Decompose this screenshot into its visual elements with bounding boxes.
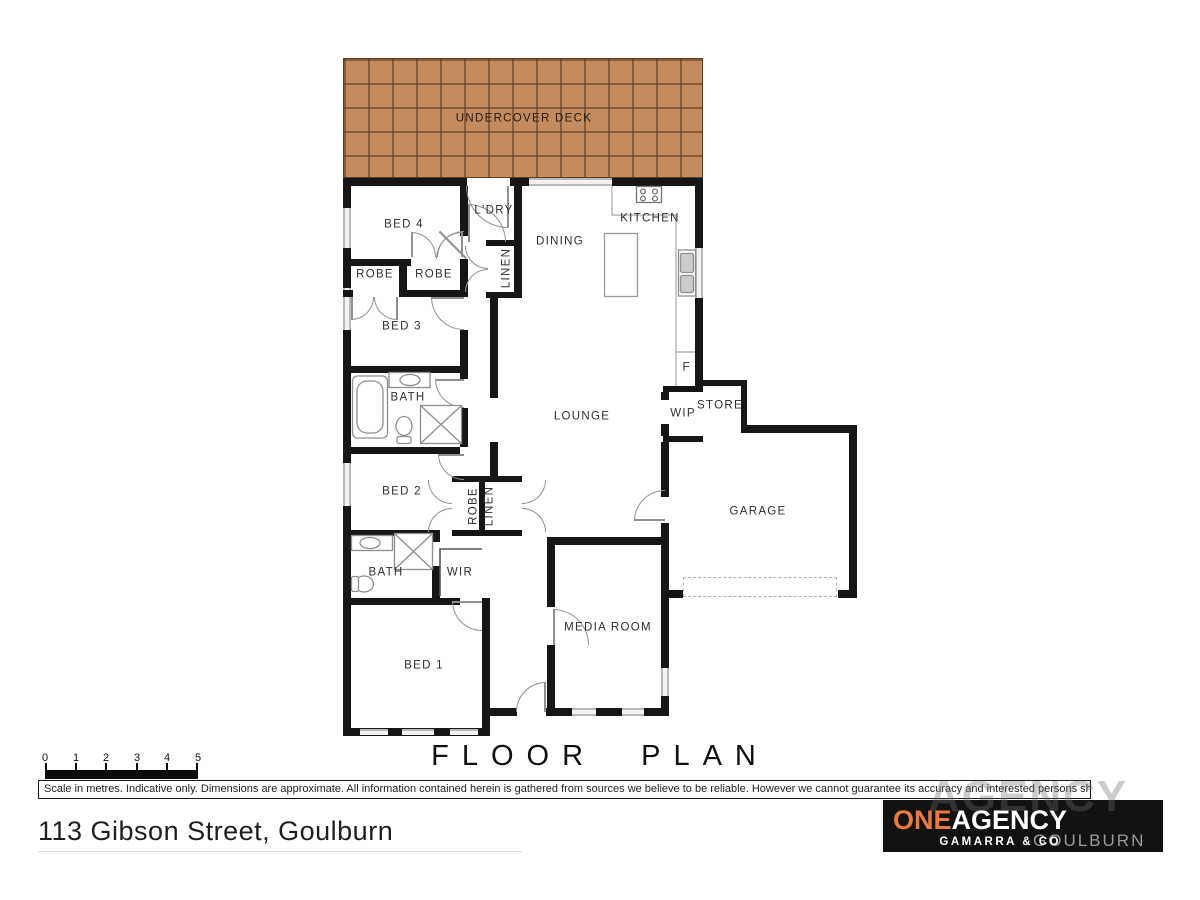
door-leaf: [351, 297, 353, 320]
door-leaf: [553, 609, 555, 645]
property-address: 113 Gibson Street, Goulburn: [38, 816, 393, 847]
fridge-label: F: [682, 362, 689, 374]
window: [343, 463, 351, 506]
door-leaf: [431, 297, 464, 299]
wall-segment: [460, 408, 468, 447]
window: [622, 708, 644, 716]
wall-segment: [490, 298, 498, 398]
door-leaf: [452, 601, 482, 603]
door-arc: [452, 601, 482, 631]
room-label-bed4: BED 4: [384, 219, 424, 231]
page-title: FLOOR PLAN: [0, 740, 1200, 773]
room-label-bed1: BED 1: [404, 660, 444, 672]
wall-segment: [343, 366, 468, 373]
wall-segment: [343, 506, 351, 736]
wall-segment: [343, 530, 440, 536]
wall-segment: [596, 708, 622, 716]
door-leaf: [396, 297, 398, 320]
door-arc: [437, 232, 462, 257]
window: [695, 248, 703, 298]
wall-segment: [343, 290, 353, 297]
wall-segment: [547, 645, 555, 716]
wall-segment: [663, 386, 703, 392]
garage-door-dashed: [683, 577, 837, 597]
wall-segment: [343, 178, 467, 186]
room-label-store: STORE: [697, 400, 743, 412]
toilet-fixture: [396, 417, 412, 436]
door-arc: [351, 297, 374, 320]
wall-segment: [838, 590, 857, 598]
vanity-fixture: [389, 373, 430, 388]
wall-segment: [343, 447, 460, 454]
shower-fixture: [421, 406, 462, 444]
wall-segment: [695, 298, 703, 386]
wall-segment: [452, 530, 522, 536]
room-label-kitchen: KITCHEN: [620, 213, 680, 225]
wall-segment: [482, 598, 490, 710]
window: [529, 178, 612, 186]
wall-segment: [849, 433, 857, 598]
room-label-deck: UNDERCOVER DECK: [456, 113, 592, 125]
floor-plan-page: UNDERCOVER DECK: [0, 0, 1200, 900]
room-label-bed2: BED 2: [382, 486, 422, 498]
room-label-bath-2: BATH: [368, 567, 403, 579]
window: [661, 668, 669, 696]
room-label-linen-2: LINEN: [484, 486, 496, 526]
room-label-bath-1: BATH: [390, 392, 425, 404]
room-label-linen-1: LINEN: [501, 248, 513, 288]
wall-segment: [343, 248, 351, 288]
room-label-wip: WIP: [670, 408, 696, 420]
room-label-lounge: LOUNGE: [554, 411, 610, 423]
door-arc: [428, 480, 452, 504]
wall-segment: [663, 436, 703, 442]
room-label-robe-1: ROBE: [356, 269, 394, 281]
wall-segment: [547, 537, 667, 545]
room-label-laundry: L'DRY: [474, 205, 513, 217]
door-arc: [522, 508, 546, 532]
undercover-deck-area: UNDERCOVER DECK: [343, 58, 703, 178]
wall-segment: [343, 178, 351, 208]
wall-segment: [741, 425, 857, 433]
door-leaf: [435, 379, 464, 381]
window: [360, 729, 388, 735]
island-bench: [605, 234, 638, 297]
vanity-fixture: [352, 536, 393, 551]
door-leaf: [461, 232, 463, 257]
wall-segment: [510, 178, 529, 186]
wall-segment: [343, 598, 460, 605]
door-arc: [411, 232, 436, 257]
door-arc: [516, 682, 546, 712]
room-label-dining: DINING: [536, 236, 584, 248]
room-label-media: MEDIA ROOM: [564, 622, 652, 634]
wall-segment: [432, 566, 440, 598]
scale-bar-rule: [45, 770, 198, 779]
shower-fixture: [395, 534, 433, 570]
agency-watermark: AGENCY: [928, 772, 1128, 822]
cooktop-fixture: [637, 187, 662, 203]
wall-segment: [490, 442, 498, 476]
wall-segment: [661, 392, 669, 400]
window: [572, 708, 596, 716]
room-label-bed3: BED 3: [382, 321, 422, 333]
wall-segment: [486, 292, 522, 298]
wall-segment: [695, 380, 747, 386]
wall-segment: [547, 537, 555, 607]
bathtub-fixture: [353, 376, 388, 438]
door-leaf: [544, 682, 546, 712]
door-arc: [438, 454, 464, 480]
wall-segment: [399, 259, 407, 297]
sink-fixture: [679, 250, 696, 296]
logo-subtitle: GAMARRA & CO: [893, 836, 1061, 848]
door-arc: [522, 480, 546, 504]
door-arc: [431, 297, 464, 330]
wall-segment: [661, 442, 669, 497]
address-divider: [38, 851, 522, 852]
wall-segment: [343, 330, 351, 463]
window: [402, 729, 434, 735]
wall-segment: [644, 708, 669, 716]
room-label-wir: WIR: [447, 567, 473, 579]
wall-segment: [460, 330, 468, 366]
door-arc: [634, 490, 665, 521]
window: [450, 729, 478, 735]
wall-segment: [612, 178, 703, 186]
wall-segment: [546, 708, 572, 716]
room-label-robe-3: ROBE: [468, 487, 480, 525]
door-leaf: [634, 519, 665, 521]
door-leaf: [411, 232, 413, 257]
wall-segment: [407, 290, 468, 297]
door-arc: [465, 269, 488, 292]
door-arc: [374, 297, 397, 320]
door-leaf: [438, 454, 464, 456]
window: [343, 208, 351, 248]
door-arc: [465, 246, 488, 269]
room-label-robe-2: ROBE: [415, 269, 453, 281]
door-arc: [428, 508, 452, 532]
wall-segment: [695, 186, 703, 248]
room-label-garage: GARAGE: [729, 506, 786, 518]
door-arc: [435, 379, 464, 408]
door-leaf: [468, 204, 470, 242]
wall-segment: [661, 424, 669, 436]
